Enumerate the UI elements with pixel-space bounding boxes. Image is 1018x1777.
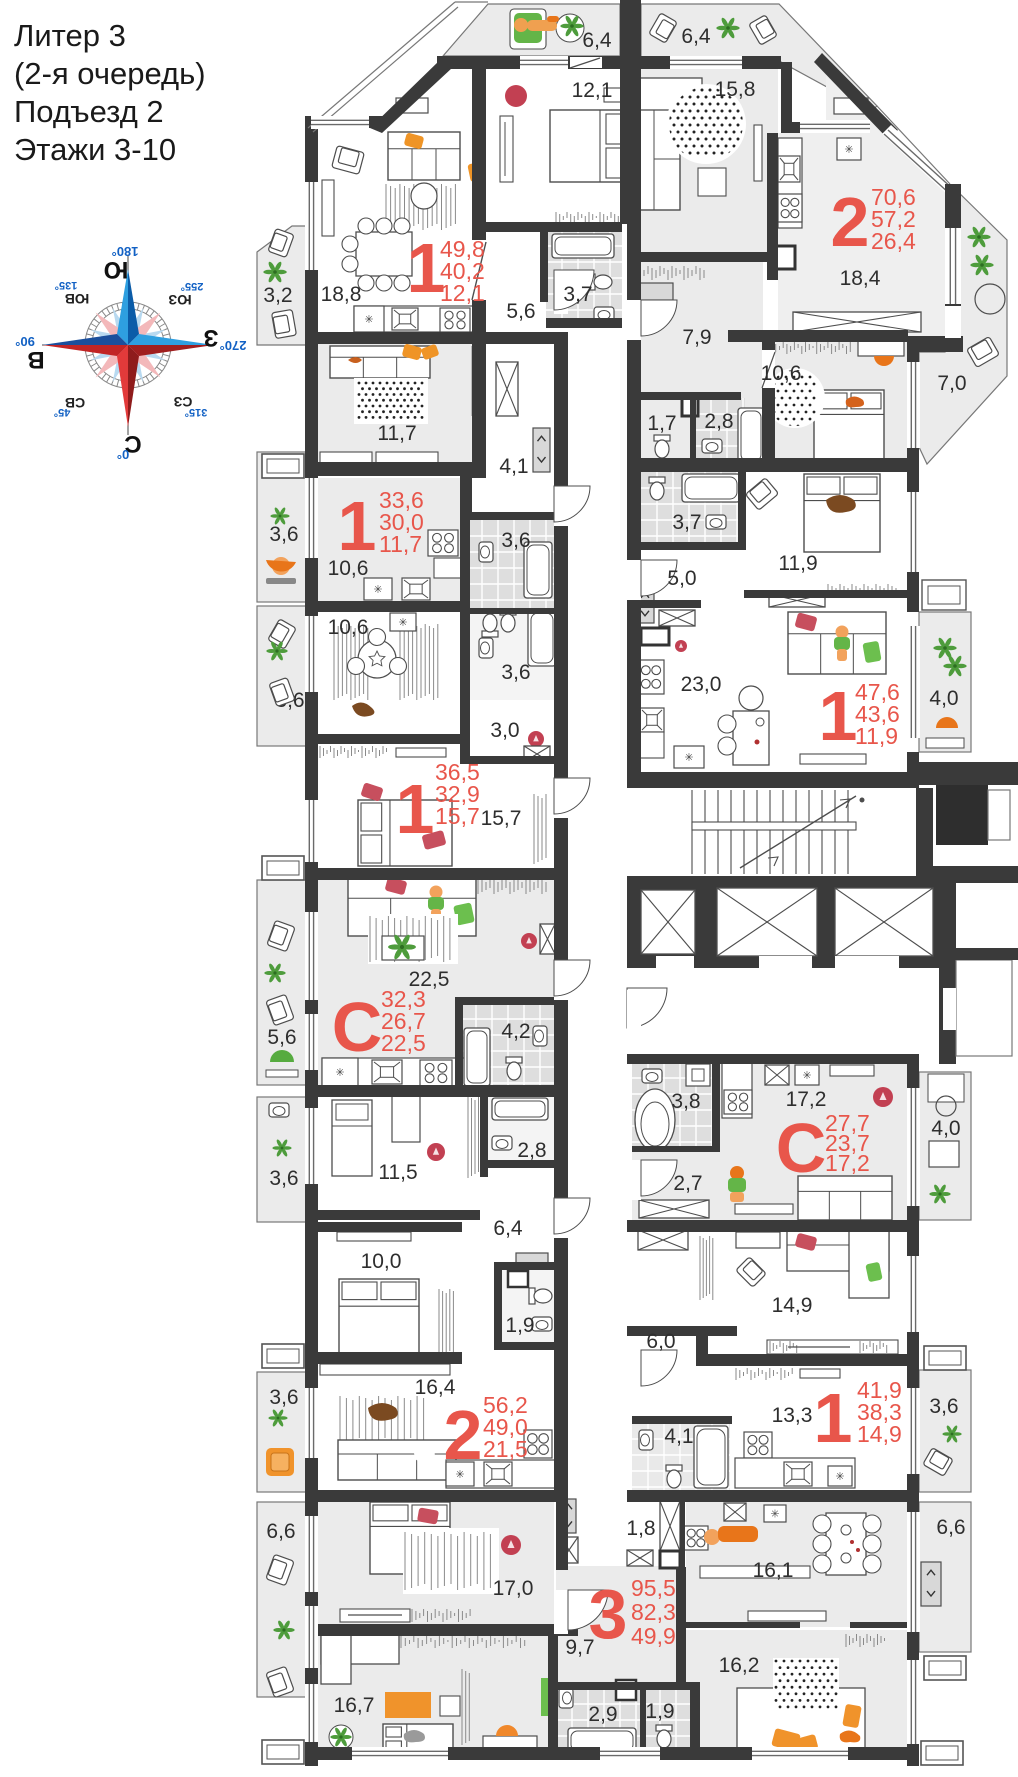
- svg-text:✳: ✳: [364, 314, 373, 326]
- svg-text:✳: ✳: [844, 144, 853, 156]
- svg-text:15,7: 15,7: [435, 803, 480, 829]
- svg-text:4,1: 4,1: [664, 1425, 693, 1448]
- svg-text:✳: ✳: [398, 617, 407, 629]
- svg-text:4,0: 4,0: [931, 1117, 960, 1140]
- svg-text:11,7: 11,7: [379, 531, 422, 557]
- svg-text:82,3: 82,3: [631, 1599, 676, 1625]
- svg-text:С: С: [332, 988, 383, 1066]
- svg-text:4,0: 4,0: [929, 687, 958, 710]
- svg-text:16,2: 16,2: [719, 1654, 760, 1677]
- svg-text:16,1: 16,1: [753, 1559, 794, 1582]
- svg-text:17,0: 17,0: [493, 1577, 534, 1600]
- svg-text:(2-я очередь): (2-я очередь): [14, 56, 206, 91]
- svg-text:3,8: 3,8: [671, 1090, 700, 1113]
- svg-text:3,0: 3,0: [490, 719, 519, 742]
- svg-text:6,6: 6,6: [266, 1520, 295, 1543]
- svg-text:Этажи 3-10: Этажи 3-10: [14, 132, 176, 167]
- svg-text:11,5: 11,5: [378, 1161, 417, 1184]
- svg-text:2,9: 2,9: [588, 1703, 617, 1726]
- svg-text:5,6: 5,6: [267, 1026, 296, 1049]
- svg-text:11,9: 11,9: [855, 723, 898, 749]
- svg-text:6,0: 6,0: [646, 1330, 675, 1353]
- svg-text:13,3: 13,3: [772, 1404, 813, 1427]
- svg-text:✳: ✳: [835, 1471, 844, 1483]
- svg-text:✳: ✳: [770, 1509, 779, 1521]
- svg-text:12,1: 12,1: [572, 79, 613, 102]
- svg-text:В: В: [27, 346, 44, 373]
- svg-text:16,7: 16,7: [334, 1694, 375, 1717]
- svg-text:4,2: 4,2: [501, 1020, 530, 1043]
- svg-text:315°: 315°: [185, 406, 208, 418]
- svg-text:3,6: 3,6: [269, 523, 298, 546]
- svg-text:1: 1: [338, 487, 377, 565]
- svg-text:3,6: 3,6: [501, 529, 530, 552]
- svg-text:2,7: 2,7: [673, 1172, 702, 1195]
- svg-text:18,8: 18,8: [321, 283, 362, 306]
- svg-text:1: 1: [814, 1379, 853, 1457]
- svg-text:3,6: 3,6: [501, 661, 530, 684]
- svg-text:45°: 45°: [54, 406, 71, 418]
- svg-text:10,6: 10,6: [328, 616, 369, 639]
- svg-text:✳: ✳: [335, 1067, 344, 1079]
- svg-text:180°: 180°: [112, 244, 139, 259]
- svg-text:1,9: 1,9: [645, 1700, 674, 1723]
- svg-text:14,9: 14,9: [772, 1294, 813, 1317]
- svg-text:255°: 255°: [181, 280, 204, 292]
- svg-text:✳: ✳: [373, 584, 382, 596]
- svg-text:ЮЗ: ЮЗ: [168, 292, 191, 308]
- svg-text:22,5: 22,5: [381, 1030, 426, 1056]
- svg-text:3: 3: [589, 1575, 628, 1653]
- svg-text:7,9: 7,9: [682, 326, 711, 349]
- svg-text:3,7: 3,7: [563, 283, 592, 306]
- svg-text:С: С: [776, 1109, 827, 1187]
- svg-text:6,4: 6,4: [582, 29, 612, 52]
- svg-text:1: 1: [396, 770, 435, 848]
- svg-text:З: З: [203, 324, 218, 351]
- svg-text:135°: 135°: [55, 279, 78, 291]
- svg-text:11,9: 11,9: [778, 552, 817, 575]
- svg-text:3,6: 3,6: [929, 1395, 958, 1418]
- svg-text:0°: 0°: [117, 447, 129, 462]
- svg-text:95,5: 95,5: [631, 1575, 676, 1601]
- svg-text:2,8: 2,8: [704, 410, 733, 433]
- svg-text:21,5: 21,5: [483, 1436, 528, 1462]
- svg-text:4,1: 4,1: [499, 455, 528, 478]
- svg-text:15,7: 15,7: [481, 807, 522, 830]
- svg-text:6,4: 6,4: [681, 25, 711, 48]
- svg-text:11,7: 11,7: [377, 422, 416, 445]
- svg-text:7,0: 7,0: [937, 372, 966, 395]
- svg-text:1,8: 1,8: [626, 1517, 655, 1540]
- svg-text:2: 2: [831, 183, 870, 261]
- svg-text:2: 2: [444, 1396, 483, 1474]
- svg-text:1,7: 1,7: [647, 412, 676, 435]
- svg-text:17,2: 17,2: [825, 1150, 870, 1176]
- svg-text:90°: 90°: [15, 334, 35, 349]
- svg-text:✳: ✳: [802, 1070, 811, 1082]
- svg-text:3,6: 3,6: [269, 1167, 298, 1190]
- svg-text:2,8: 2,8: [517, 1139, 546, 1162]
- svg-text:Литер 3: Литер 3: [14, 18, 126, 53]
- svg-text:10,6: 10,6: [761, 362, 802, 385]
- svg-text:5,6: 5,6: [506, 300, 535, 323]
- svg-text:ЮВ: ЮВ: [65, 291, 90, 307]
- svg-text:14,9: 14,9: [857, 1421, 902, 1447]
- svg-text:23,0: 23,0: [681, 673, 722, 696]
- svg-text:1,9: 1,9: [505, 1314, 534, 1337]
- svg-text:3,7: 3,7: [672, 511, 701, 534]
- svg-text:17,2: 17,2: [786, 1088, 827, 1111]
- svg-text:18,4: 18,4: [840, 267, 881, 290]
- svg-text:26,4: 26,4: [871, 228, 916, 254]
- svg-text:3,2: 3,2: [263, 284, 292, 307]
- svg-text:6,6: 6,6: [936, 1516, 965, 1539]
- svg-text:10,0: 10,0: [361, 1250, 402, 1273]
- svg-text:1: 1: [819, 677, 858, 755]
- svg-text:6,4: 6,4: [493, 1217, 523, 1240]
- svg-text:Ю: Ю: [104, 256, 129, 283]
- svg-text:15,8: 15,8: [715, 78, 756, 101]
- svg-text:12,1: 12,1: [440, 280, 485, 306]
- svg-text:49,9: 49,9: [631, 1623, 676, 1649]
- svg-text:270°: 270°: [220, 338, 247, 353]
- svg-text:3,6: 3,6: [269, 1386, 298, 1409]
- svg-text:5,0: 5,0: [667, 567, 696, 590]
- svg-text:✳: ✳: [684, 752, 693, 764]
- svg-text:Подъезд 2: Подъезд 2: [14, 94, 164, 129]
